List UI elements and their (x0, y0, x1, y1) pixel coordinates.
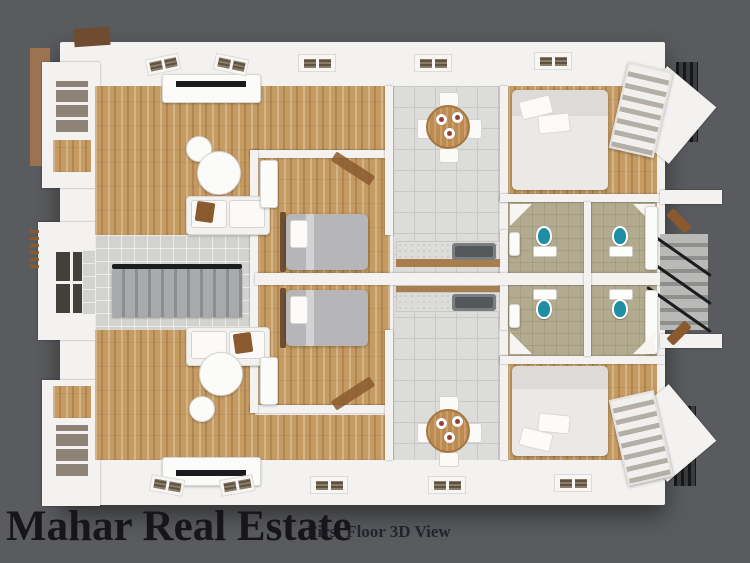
balcony-floor-top-left (53, 140, 91, 172)
toilet-bowl-tl (536, 226, 552, 246)
pillow-right-top-2 (537, 112, 571, 134)
toilet-bowl-bl (536, 299, 552, 319)
external-staircase (660, 234, 708, 330)
toilet-tank-tl (533, 246, 557, 257)
window-top-left (53, 78, 91, 138)
toilet-tank-tr (609, 246, 633, 257)
wall-bedroom-left-top (250, 150, 390, 158)
plate-bottom-1 (436, 418, 447, 429)
pillow-right-bottom-2 (537, 412, 571, 434)
brand-watermark: Mahar Real Estate (6, 505, 352, 548)
wall-bathrooms-middle (584, 202, 591, 356)
coffee-table-small-bottom (189, 396, 215, 422)
plate-top-1 (436, 114, 447, 125)
living-room-bottom-floor (95, 415, 390, 460)
bathroom-sink-bl (509, 304, 520, 328)
tv-screen-bottom (176, 470, 246, 476)
coffee-table-large-top (197, 151, 241, 195)
wall-dining-left-lower (385, 330, 393, 460)
ceiling-vent-8 (310, 476, 348, 494)
throw-blanket-bottom (233, 332, 254, 354)
dining-chair-bottom-s (439, 452, 459, 467)
throw-blanket-top (195, 201, 216, 223)
bathroom-counter-tr (645, 206, 658, 270)
ceiling-vent-3 (298, 54, 336, 72)
bathroom-sink-tl (509, 232, 520, 256)
wall-dining-right-upper (500, 86, 508, 202)
plate-bottom-2 (452, 416, 463, 427)
roof-eave (73, 27, 110, 47)
pillow-left-top (290, 220, 308, 248)
wall-dining-right-lower (500, 356, 508, 460)
nightstand-top (260, 160, 278, 208)
kitchen-cabinet-top (396, 259, 500, 267)
wall-bathrooms-bottom (500, 356, 665, 364)
entrance-railing (30, 226, 39, 268)
wall-bathrooms-top (500, 194, 665, 202)
plate-top-3 (444, 128, 455, 139)
kitchen-sink-top (452, 243, 496, 260)
stair-landing-wall-top (660, 190, 722, 204)
ceiling-vent-9 (428, 476, 466, 494)
coffee-table-large-bottom (199, 352, 243, 396)
window-bottom-left (53, 422, 91, 482)
dining-table-top (426, 105, 470, 149)
plate-bottom-3 (444, 432, 455, 443)
ceiling-vent-4 (414, 54, 452, 72)
staircase (112, 269, 242, 317)
pillow-left-bottom (290, 296, 308, 324)
nightstand-bottom (260, 357, 278, 405)
balcony-floor-bottom-left (53, 386, 91, 418)
wall-unit-divider (255, 273, 665, 285)
toilet-bowl-br (612, 299, 628, 319)
toilet-bowl-tr (612, 226, 628, 246)
tv-console-top (162, 74, 261, 103)
tv-screen-top (176, 81, 246, 87)
wall-bedroom-left-bottom (250, 405, 390, 413)
kitchen-sink-bottom (452, 294, 496, 311)
wall-dining-left-upper (385, 86, 393, 235)
floor-plan-render: First Floor 3D View Mahar Real Estate (0, 0, 750, 563)
ceiling-vent-5 (534, 52, 572, 70)
dining-chair-top-s (439, 148, 459, 163)
stair-wood-step-top (666, 208, 691, 233)
ceiling-vent-10 (554, 474, 592, 492)
dining-table-bottom (426, 409, 470, 453)
plate-top-2 (452, 112, 463, 123)
